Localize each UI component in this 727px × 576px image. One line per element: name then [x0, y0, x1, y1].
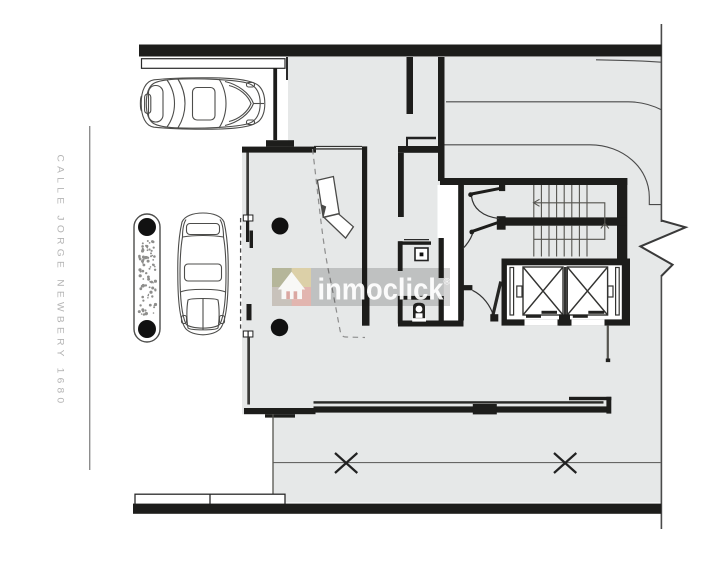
svg-text:inmoclick: inmoclick	[318, 273, 444, 307]
svg-text:®: ®	[444, 277, 451, 288]
svg-text:CALLE JORGE NEWBERY 1680: CALLE JORGE NEWBERY 1680	[55, 155, 66, 408]
